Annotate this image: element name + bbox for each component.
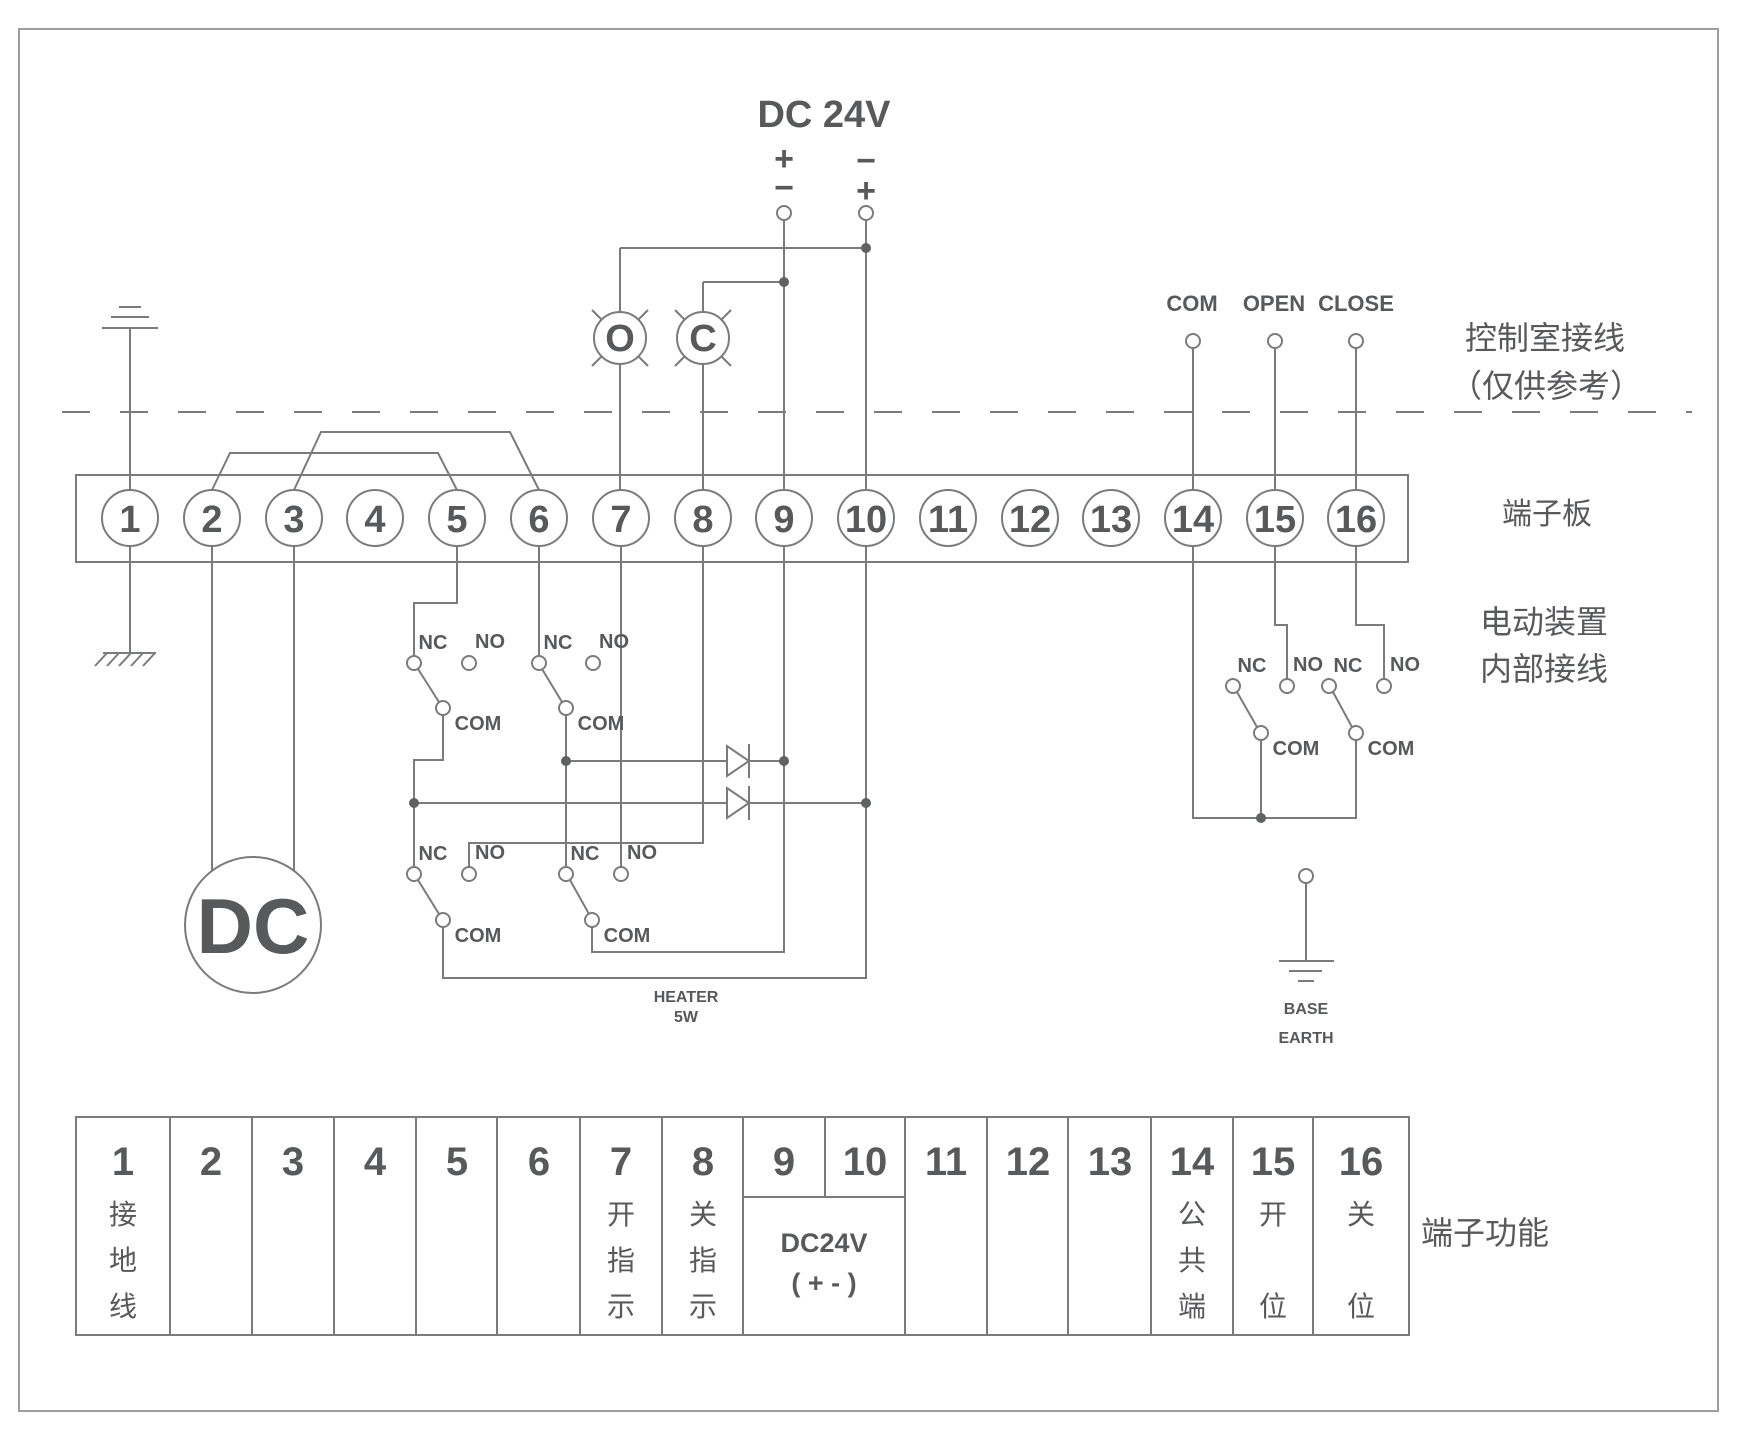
nc-label: NC [1334,655,1363,677]
no-label: NO [599,631,629,653]
wiring-diagram-page: DC 24V + − − + O C COM OPEN CLOSE [0,0,1755,1440]
dc-power-title: DC 24V [757,94,891,136]
terminal-11: 11 [928,499,968,541]
func-16-char2: 位 [1347,1291,1375,1322]
cell-num-11: 11 [925,1140,967,1184]
dc-supply-terminal-plus [777,206,791,220]
open-lamp-letter: O [605,318,635,360]
com-label: COM [604,925,651,947]
junction-dot [861,243,871,253]
remote-open-terminal [1268,334,1282,348]
dc-supply-terminal-minus [859,206,873,220]
base-earth-line1: BASE [1284,1001,1329,1018]
nc-label: NC [1238,655,1267,677]
func-15-char2: 位 [1259,1291,1287,1322]
table-column-borders [170,1117,1313,1335]
junction-dot [779,277,789,287]
remote-com-label: COM [1166,291,1217,316]
polarity-right-bottom: + [856,172,876,210]
feedback-switch-close: NC NO COM [1322,654,1420,760]
terminal-7: 7 [610,499,631,541]
terminal-12: 12 [1009,499,1051,541]
junction-dot [1256,813,1266,823]
terminal-function-table: 1 2 3 4 5 6 7 8 9 10 11 12 13 14 15 16 接… [76,1117,1549,1335]
jumper-terminal-3-to-6 [294,432,539,490]
limit-switch-open-lower: NC NO COM [407,842,505,947]
no-label: NO [1390,654,1420,676]
func-1-char2: 地 [109,1245,137,1276]
terminal-9: 9 [773,499,794,541]
com-label: COM [1368,738,1415,760]
func-dc24v-line1: DC24V [780,1228,867,1258]
cell-num-7: 7 [610,1140,632,1184]
terminal-circles: 1 2 3 4 5 6 7 8 9 10 11 12 13 14 15 16 [102,490,1384,546]
terminal-3: 3 [283,499,304,541]
terminal-6: 6 [528,499,549,541]
remote-close-label: CLOSE [1318,291,1394,316]
func-16-char1: 关 [1347,1199,1375,1230]
no-label: NO [475,842,505,864]
terminal-board-label: 端子板 [1502,498,1592,531]
wire-terminal-8-to-switch3-no [469,546,703,867]
cell-num-5: 5 [446,1140,468,1184]
func-8-char3: 示 [689,1291,717,1322]
dc-motor: DC [185,857,321,993]
cell-num-14: 14 [1170,1140,1215,1184]
heater-label-line1: HEATER [654,989,719,1006]
func-1-char1: 接 [109,1199,137,1230]
cell-num-4: 4 [364,1140,387,1184]
terminal-1: 1 [119,499,140,541]
close-indicator-lamp: C [675,310,731,366]
func-dc24v-line2: ( + - ) [791,1268,856,1298]
cell-num-10: 10 [843,1140,888,1184]
no-label: NO [627,842,657,864]
limit-switch-open-upper: NC NO COM [407,631,505,735]
func-8-char2: 指 [689,1245,717,1276]
terminal-2: 2 [201,499,222,541]
func-14-char1: 公 [1178,1199,1206,1230]
com-label: COM [455,713,502,735]
frame-ground-symbol [95,653,156,666]
nc-label: NC [419,632,448,654]
drawing-border [19,29,1718,1411]
terminal-16: 16 [1335,499,1377,541]
terminal-13: 13 [1090,499,1132,541]
func-14-char2: 共 [1178,1245,1206,1276]
junction-dot [561,756,571,766]
func-7-char2: 指 [607,1245,635,1276]
terminal-board: 1 2 3 4 5 6 7 8 9 10 11 12 13 14 15 16 端… [76,432,1592,562]
func-1-char3: 线 [109,1291,137,1322]
control-room-section: DC 24V + − − + O C COM OPEN CLOSE [102,94,1642,490]
cell-num-12: 12 [1006,1140,1051,1184]
junction-dot [861,798,871,808]
jumper-terminal-2-to-5 [212,453,457,490]
com-label: COM [455,925,502,947]
func-15-char1: 开 [1259,1199,1287,1230]
terminal-4: 4 [364,499,385,541]
cell-num-3: 3 [282,1140,304,1184]
terminal-14: 14 [1172,499,1214,541]
terminal-8: 8 [692,499,713,541]
func-7-char1: 开 [607,1199,635,1230]
cell-num-15: 15 [1251,1140,1296,1184]
open-indicator-lamp: O [592,310,648,366]
func-8-char1: 关 [689,1199,717,1230]
wire-terminal-15-to-switch5-no [1275,546,1287,679]
com-label: COM [1273,738,1320,760]
cell-num-8: 8 [692,1140,714,1184]
cell-num-1: 1 [112,1140,134,1184]
cell-num-16: 16 [1339,1140,1384,1184]
heater-label-line2: 5W [674,1009,699,1026]
cell-num-9: 9 [773,1140,795,1184]
terminal-5: 5 [446,499,467,541]
base-earth-symbol: BASE EARTH [1278,869,1334,1047]
remote-open-label: OPEN [1243,291,1305,316]
junction-dot [409,798,419,808]
cell-num-13: 13 [1088,1140,1133,1184]
remote-close-terminal [1349,334,1363,348]
com-label: COM [578,713,625,735]
internal-label-line1: 电动装置 [1480,604,1608,640]
remote-com-terminal [1186,334,1200,348]
internal-label-line2: 内部接线 [1480,651,1608,687]
table-number-row: 1 2 3 4 5 6 7 8 9 10 11 12 13 14 15 16 [112,1140,1383,1184]
internal-wiring-section: DC NC NO COM [95,546,1608,1047]
cell-num-6: 6 [528,1140,550,1184]
control-room-note-line2: （仅供参考） [1450,368,1642,404]
feedback-switch-open: NC NO COM [1226,654,1323,760]
nc-label: NC [571,843,600,865]
control-room-note-line1: 控制室接线 [1465,320,1625,356]
cell-num-2: 2 [200,1140,222,1184]
func-14-char3: 端 [1178,1291,1206,1322]
wiring-diagram: DC 24V + − − + O C COM OPEN CLOSE [0,0,1755,1440]
base-earth-line2: EARTH [1278,1030,1333,1047]
no-label: NO [1293,654,1323,676]
terminal-15: 15 [1254,499,1296,541]
func-7-char3: 示 [607,1291,635,1322]
nc-label: NC [419,843,448,865]
no-label: NO [475,631,505,653]
polarity-left-bottom: − [774,169,794,207]
diode-lower [727,786,749,820]
diode-upper [727,744,749,778]
motor-label: DC [197,882,310,970]
limit-switch-close-upper: NC NO COM [532,631,629,735]
table-label: 端子功能 [1421,1215,1549,1251]
clean-earth-symbol [102,307,158,490]
nc-label: NC [544,632,573,654]
close-lamp-letter: C [689,318,716,360]
limit-switch-close-lower: NC NO COM [559,842,657,947]
junction-dot [779,756,789,766]
terminal-10: 10 [845,499,887,541]
